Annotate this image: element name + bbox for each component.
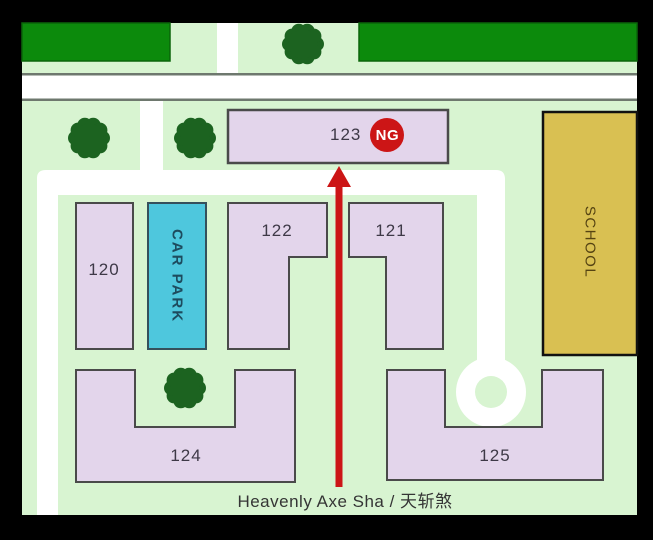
school-label: SCHOOL [582, 206, 599, 278]
building-120-label: 120 [88, 260, 119, 280]
cul-de-sac-island [475, 376, 507, 408]
building-125-label: 125 [479, 446, 510, 466]
main-road [22, 76, 637, 99]
hedge-right [359, 23, 637, 61]
diagram-caption: Heavenly Axe Sha / 天斩煞 [145, 487, 545, 512]
tree-icon [68, 118, 110, 159]
car-park-label: CAR PARK [169, 229, 186, 323]
tree-icon [164, 368, 206, 409]
tree-icon [282, 24, 324, 65]
feng-shui-site-plan: 120 CAR PARK 122 121 124 125 SCHOOL 123 … [0, 0, 653, 540]
tree-icon [174, 118, 216, 159]
hedge-left [22, 23, 170, 61]
connector-road [140, 101, 163, 171]
top-driveway [217, 23, 238, 74]
building-121-label: 121 [375, 221, 406, 241]
ng-badge: NG [370, 118, 404, 152]
building-122-label: 122 [261, 221, 292, 241]
building-124-label: 124 [170, 446, 201, 466]
building-123-label: 123 [330, 125, 361, 145]
building-123-tag: 123 NG [330, 118, 404, 152]
